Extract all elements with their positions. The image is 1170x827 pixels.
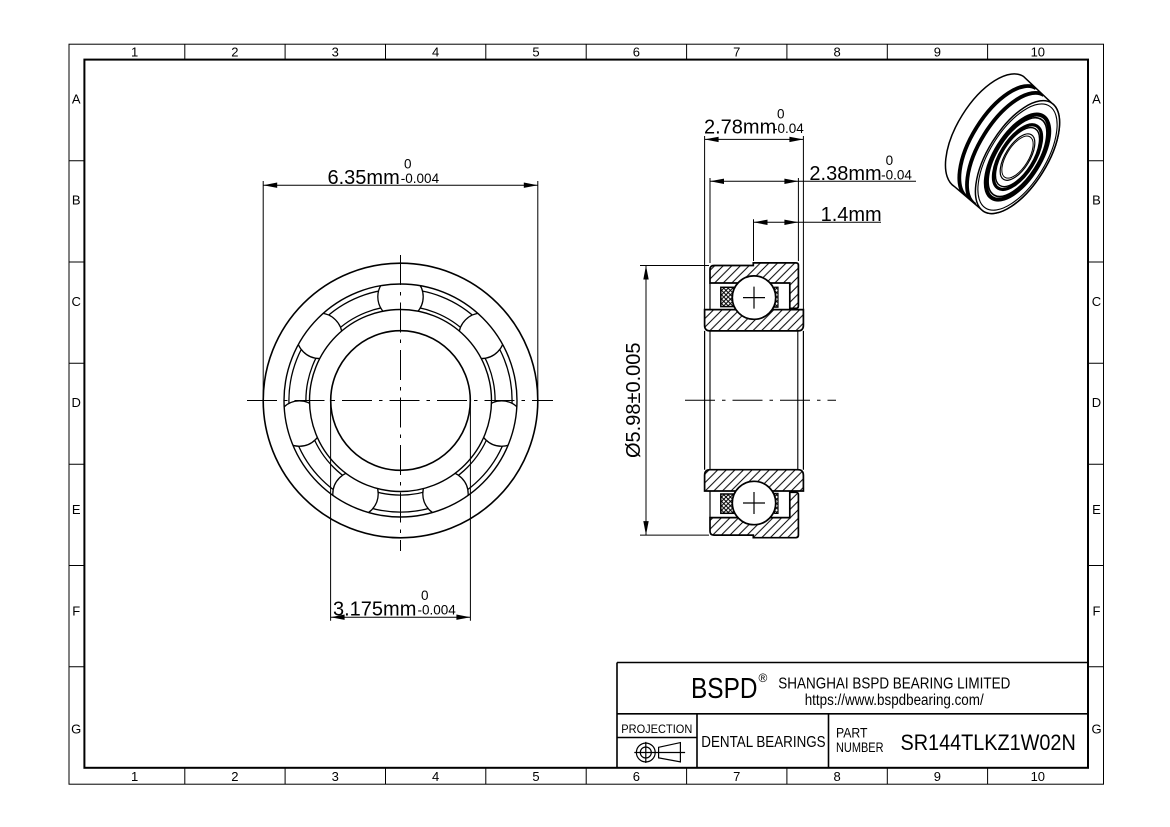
svg-text:G: G — [71, 722, 81, 737]
svg-text:A: A — [1092, 92, 1101, 107]
svg-text:3: 3 — [332, 44, 339, 59]
svg-text:E: E — [72, 502, 81, 517]
svg-text:C: C — [72, 294, 81, 309]
svg-text:B: B — [1092, 193, 1101, 208]
svg-text:A: A — [72, 92, 81, 107]
svg-text:0: 0 — [404, 157, 412, 172]
svg-text:BSPD: BSPD — [691, 673, 758, 705]
svg-text:5: 5 — [532, 769, 539, 784]
svg-text:-0.004: -0.004 — [401, 171, 440, 186]
svg-text:6: 6 — [633, 44, 640, 59]
svg-text:DENTAL BEARINGS: DENTAL BEARINGS — [701, 734, 825, 751]
svg-text:https://www.bspdbearing.com/: https://www.bspdbearing.com/ — [805, 692, 985, 709]
svg-text:0: 0 — [777, 107, 785, 122]
svg-text:E: E — [1092, 502, 1101, 517]
svg-text:4: 4 — [432, 769, 439, 784]
svg-text:2: 2 — [231, 769, 238, 784]
svg-text:-0.04: -0.04 — [773, 121, 804, 136]
svg-text:F: F — [1093, 604, 1101, 619]
svg-text:10: 10 — [1031, 769, 1045, 784]
svg-text:0: 0 — [421, 588, 429, 603]
svg-text:PROJECTION: PROJECTION — [621, 724, 692, 736]
svg-text:5: 5 — [532, 44, 539, 59]
svg-text:1: 1 — [131, 769, 138, 784]
svg-text:2.78mm: 2.78mm — [704, 117, 776, 139]
svg-text:9: 9 — [934, 44, 941, 59]
svg-text:D: D — [72, 395, 81, 410]
svg-text:0: 0 — [886, 153, 894, 168]
svg-text:SHANGHAI BSPD BEARING LIMITED: SHANGHAI BSPD BEARING LIMITED — [778, 676, 1010, 693]
svg-text:G: G — [1091, 722, 1101, 737]
svg-text:2: 2 — [231, 44, 238, 59]
svg-text:8: 8 — [833, 769, 840, 784]
svg-text:SR144TLKZ1W02N: SR144TLKZ1W02N — [901, 730, 1076, 755]
svg-text:D: D — [1092, 395, 1101, 410]
svg-text:4: 4 — [432, 44, 439, 59]
svg-text:6.35mm: 6.35mm — [328, 167, 400, 189]
svg-text:F: F — [72, 604, 80, 619]
svg-text:Ø5.98±0.005: Ø5.98±0.005 — [623, 342, 645, 458]
svg-text:C: C — [1092, 294, 1101, 309]
svg-text:3.175mm: 3.175mm — [333, 599, 416, 621]
svg-text:2.38mm: 2.38mm — [809, 163, 881, 185]
svg-text:NUMBER: NUMBER — [836, 740, 884, 755]
svg-text:®: ® — [759, 671, 768, 685]
svg-text:B: B — [72, 193, 81, 208]
svg-text:7: 7 — [733, 769, 740, 784]
svg-text:7: 7 — [733, 44, 740, 59]
svg-text:-0.004: -0.004 — [418, 603, 457, 618]
svg-text:3: 3 — [332, 769, 339, 784]
svg-text:PART: PART — [836, 726, 868, 741]
svg-text:6: 6 — [633, 769, 640, 784]
svg-text:1: 1 — [131, 44, 138, 59]
svg-text:8: 8 — [833, 44, 840, 59]
svg-text:-0.04: -0.04 — [881, 167, 912, 182]
svg-text:9: 9 — [934, 769, 941, 784]
svg-text:1.4mm: 1.4mm — [821, 204, 882, 226]
svg-text:10: 10 — [1031, 44, 1045, 59]
